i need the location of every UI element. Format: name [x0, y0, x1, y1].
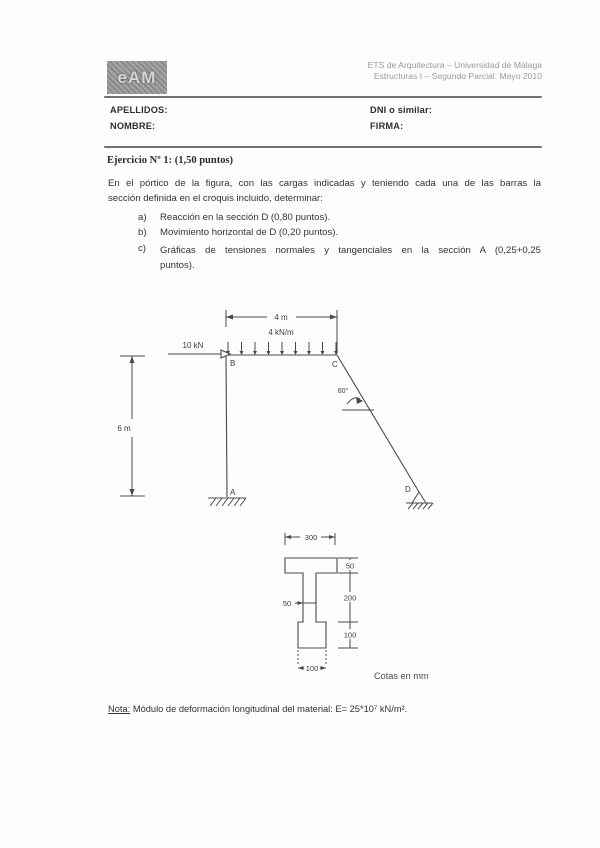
school-logo: eAM	[107, 61, 167, 94]
institution-line2: Estructuras I – Segundo Parcial. Mayo 20…	[368, 71, 542, 82]
item-c-text: Gráficas de tensiones normales y tangenc…	[160, 243, 541, 273]
node-d-label: D	[405, 485, 411, 494]
institution-line1: ETS de Arquitectura – Universidad de Mál…	[368, 60, 542, 71]
support-d-pinned	[406, 492, 433, 509]
intro-line1: En el pórtico de la figura, con las carg…	[108, 176, 541, 191]
intro-line2: sección definida en el croquis incluido,…	[108, 191, 541, 206]
header-bottom-rule	[104, 146, 542, 148]
frame-column-ab	[226, 355, 227, 497]
distributed-load-label: 4 kN/m	[268, 328, 294, 337]
school-logo-text: eAM	[118, 68, 157, 88]
support-a-fixed	[208, 498, 246, 506]
node-a-label: A	[230, 488, 236, 497]
flange-thickness-label: 50	[346, 562, 354, 571]
cross-section-diagram: 300 50 200 100 50 100	[270, 525, 440, 695]
item-a-marker: a)	[138, 212, 147, 223]
web-width-label: 50	[283, 599, 291, 608]
block-height-label: 100	[344, 631, 357, 640]
item-c-line2: puntos).	[160, 258, 541, 273]
item-c-line1: Gráficas de tensiones normales y tangenc…	[160, 243, 541, 258]
frame-incline-cd	[337, 355, 419, 492]
field-dni-label: DNI o similar:	[370, 105, 432, 115]
exercise-intro: En el pórtico de la figura, con las carg…	[108, 176, 541, 206]
span-dimension-label: 4 m	[274, 313, 288, 322]
web-height-label: 200	[344, 594, 357, 603]
item-b-text: Movimiento horizontal de D (0,20 puntos)…	[160, 227, 338, 238]
material-note-text: Módulo de deformación longitudinal del m…	[133, 704, 407, 714]
material-note-label: Nota:	[108, 704, 130, 714]
units-note: Cotas en mm	[374, 671, 429, 681]
frame-diagram: 4 m 4 kN/m 10 kN 6 m 60° B C A D	[100, 300, 440, 515]
field-firma-label: FIRMA:	[370, 121, 403, 131]
block-width-label: 100	[306, 664, 319, 673]
material-note: Nota: Módulo de deformación longitudinal…	[108, 704, 407, 714]
node-b-label: B	[230, 359, 235, 368]
point-load-arrow	[168, 350, 230, 358]
field-apellidos-label: APELLIDOS:	[110, 105, 168, 115]
distributed-load-arrows	[226, 342, 338, 355]
point-load-label: 10 kN	[183, 341, 204, 350]
field-nombre-label: NOMBRE:	[110, 121, 155, 131]
dimension-web-width	[295, 599, 316, 607]
node-c-label: C	[332, 360, 338, 369]
item-a-text: Reacción en la sección D (0,80 puntos).	[160, 212, 330, 223]
scanned-exam-page: eAM ETS de Arquitectura – Universidad de…	[0, 0, 600, 848]
institution-header: ETS de Arquitectura – Universidad de Mál…	[368, 60, 542, 82]
height-dimension-label: 6 m	[117, 424, 131, 433]
header-top-rule	[104, 96, 542, 98]
item-c-marker: c)	[138, 243, 146, 254]
flange-width-label: 300	[305, 533, 318, 542]
exercise-title: Ejercicio Nº 1: (1,50 puntos)	[107, 155, 233, 166]
item-b-marker: b)	[138, 227, 147, 238]
angle-label: 60°	[338, 387, 349, 395]
